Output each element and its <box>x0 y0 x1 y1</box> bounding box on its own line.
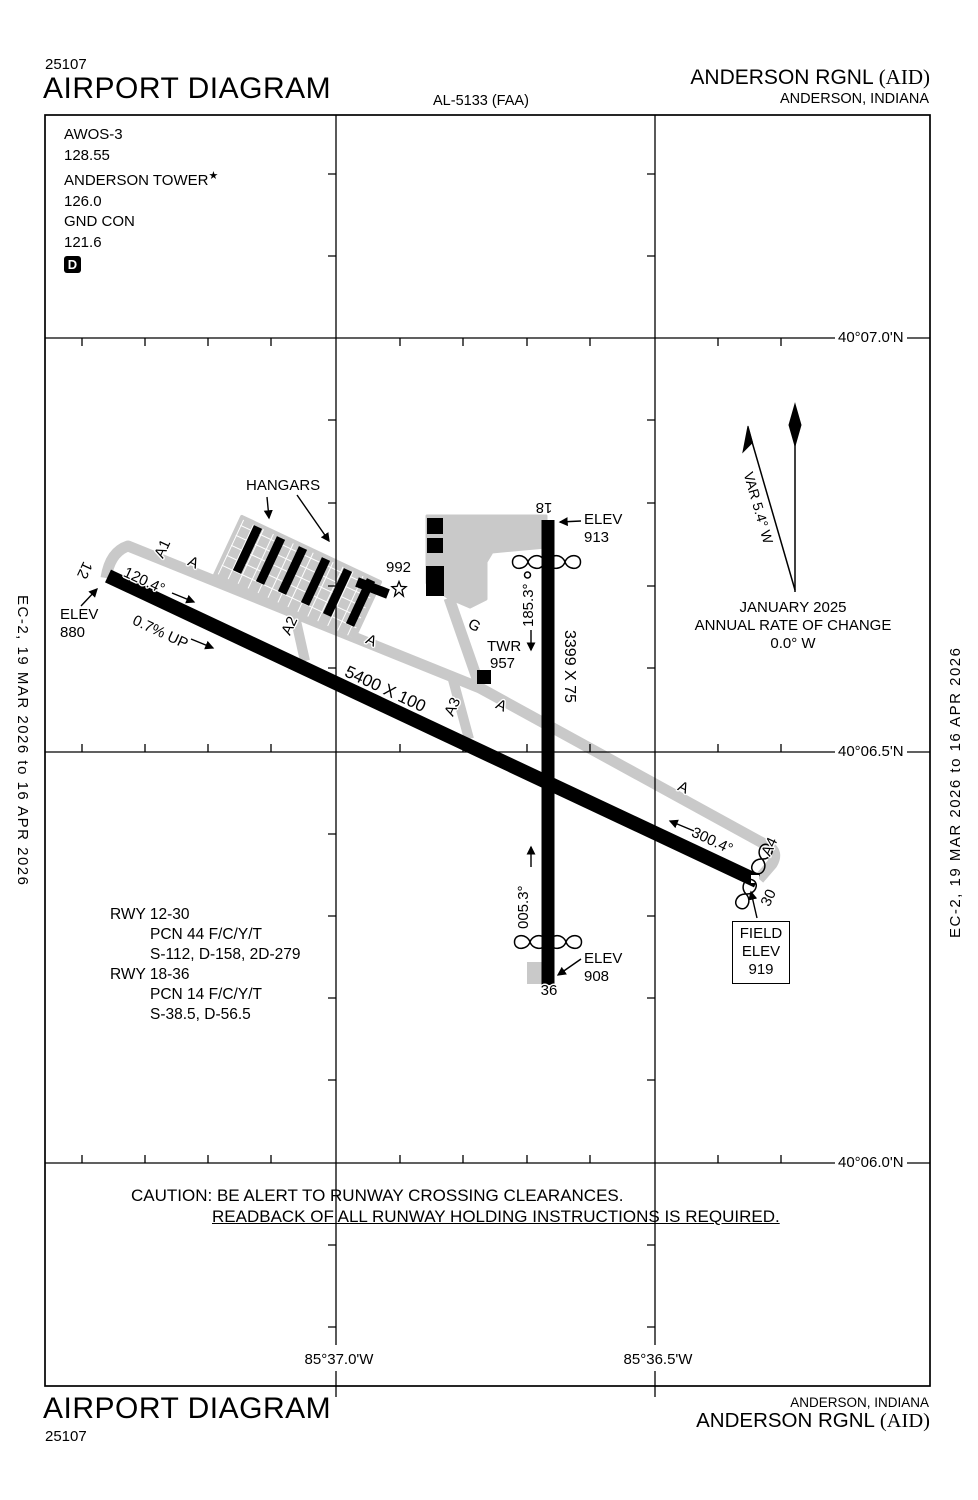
rwy-12-30-strength: S-112, D-158, 2D-279 <box>150 945 301 965</box>
taxiway-g-stub <box>449 598 479 684</box>
field-elev-line1: FIELD <box>733 925 789 943</box>
runway-36-heading: 005.3° <box>515 885 533 929</box>
elev-908-arrow <box>558 959 581 975</box>
airport-title-top: ANDERSON RGNL (AID) <box>690 65 930 90</box>
heading-300-arrow <box>670 821 694 831</box>
hold-dot <box>525 572 531 578</box>
caution-line-1: CAUTION: BE ALERT TO RUNWAY CROSSING CLE… <box>131 1186 624 1206</box>
rwy-18-36-title: RWY 18-36 <box>110 965 301 985</box>
compass-date: JANUARY 2025 <box>739 599 846 617</box>
latitude-label-1: 40°07.0'N <box>835 329 907 348</box>
chart-number-bottom: 25107 <box>45 1428 87 1446</box>
runway-36-pad <box>527 962 542 984</box>
elev-913-arrow <box>560 521 581 522</box>
rwy-18-36-strength: S-38.5, D-56.5 <box>150 1005 301 1025</box>
tower-label: ANDERSON TOWER★ <box>64 166 218 192</box>
latitude-label-3: 40°06.0'N <box>835 1154 907 1173</box>
rwy-18-36-pcn: PCN 14 F/C/Y/T <box>150 985 301 1005</box>
caution-line-2: READBACK OF ALL RUNWAY HOLDING INSTRUCTI… <box>212 1207 780 1227</box>
clearance-delivery-icon: D <box>64 256 81 273</box>
effective-dates-right: EC-2, 19 MAR 2026 to 16 APR 2026 <box>947 647 964 938</box>
awos-label: AWOS-3 <box>64 125 218 146</box>
runway-18-36-dimensions: 3399 X 75 <box>559 630 578 703</box>
tower-frequency: 126.0 <box>64 192 218 213</box>
field-elev-line3: 919 <box>733 961 789 979</box>
hangars-arrow-2 <box>297 495 329 541</box>
hangars-arrow-1 <box>267 497 269 518</box>
airport-title-bottom: ANDERSON RGNL (AID) <box>696 1409 930 1433</box>
latitude-label-2: 40°06.5'N <box>835 743 907 762</box>
page-title-top: AIRPORT DIAGRAM <box>43 74 331 104</box>
gradient-up-arrow <box>191 639 213 648</box>
airport-diagram-page: 25107 AIRPORT DIAGRAM AL-5133 (FAA) ANDE… <box>0 0 978 1500</box>
elev-908-label: ELEV908 <box>584 950 622 986</box>
field-elevation-box: FIELD ELEV 919 <box>732 921 790 984</box>
tower-label-site: TWR <box>487 638 521 656</box>
obstruction-992-label: 992 <box>386 559 411 577</box>
ground-frequency: 121.6 <box>64 233 218 254</box>
field-elev-arrow <box>751 892 757 918</box>
elev-880-label: ELEV880 <box>60 606 98 642</box>
runway-12-30 <box>108 576 757 881</box>
tower-elevation: 957 <box>490 655 515 673</box>
rwy-12-30-pcn: PCN 44 F/C/Y/T <box>150 925 301 945</box>
frequency-box: AWOS-3 128.55 ANDERSON TOWER★ 126.0 GND … <box>64 125 218 274</box>
awos-frequency: 128.55 <box>64 146 218 167</box>
tower-site-square <box>477 670 491 684</box>
airport-name-bottom: ANDERSON RGNL <box>696 1409 874 1432</box>
tower-star-icon: ★ <box>208 170 218 182</box>
page-title-bottom: AIRPORT DIAGRAM <box>43 1394 331 1424</box>
longitude-label-2: 85°36.5'W <box>618 1351 698 1370</box>
rwy-12-30-title: RWY 12-30 <box>110 905 301 925</box>
elev-913-label: ELEV913 <box>584 511 622 547</box>
true-north-arrowhead <box>789 404 801 446</box>
hangars-label: HANGARS <box>246 477 320 495</box>
runway-data-block: RWY 12-30 PCN 44 F/C/Y/T S-112, D-158, 2… <box>110 905 301 1025</box>
al-number: AL-5133 (FAA) <box>433 93 529 110</box>
effective-dates-left: EC-2, 19 MAR 2026 to 16 APR 2026 <box>14 595 31 886</box>
lat-ticks <box>82 338 781 1163</box>
airport-id-bottom: (AID) <box>880 1410 930 1432</box>
city-state-top: ANDERSON, INDIANA <box>780 91 929 107</box>
runway-number-36: 36 <box>541 982 558 1000</box>
ground-label: GND CON <box>64 212 218 233</box>
runway-18-heading: 185.3° <box>520 583 538 627</box>
magnetic-north-arrowhead <box>743 426 753 452</box>
compass-rate-value: 0.0° W <box>770 635 815 653</box>
field-elev-line2: ELEV <box>733 943 789 961</box>
runway-number-18: 18 <box>536 498 553 516</box>
airport-id-top: (AID) <box>879 65 930 89</box>
longitude-label-1: 85°37.0'W <box>299 1351 379 1370</box>
city-state-bottom: ANDERSON, INDIANA <box>790 1395 929 1410</box>
elev-880-arrow <box>81 589 97 606</box>
compass-rate-label: ANNUAL RATE OF CHANGE <box>695 617 892 635</box>
airport-name-top: ANDERSON RGNL <box>690 66 872 89</box>
obstruction-star-icon <box>392 582 406 597</box>
